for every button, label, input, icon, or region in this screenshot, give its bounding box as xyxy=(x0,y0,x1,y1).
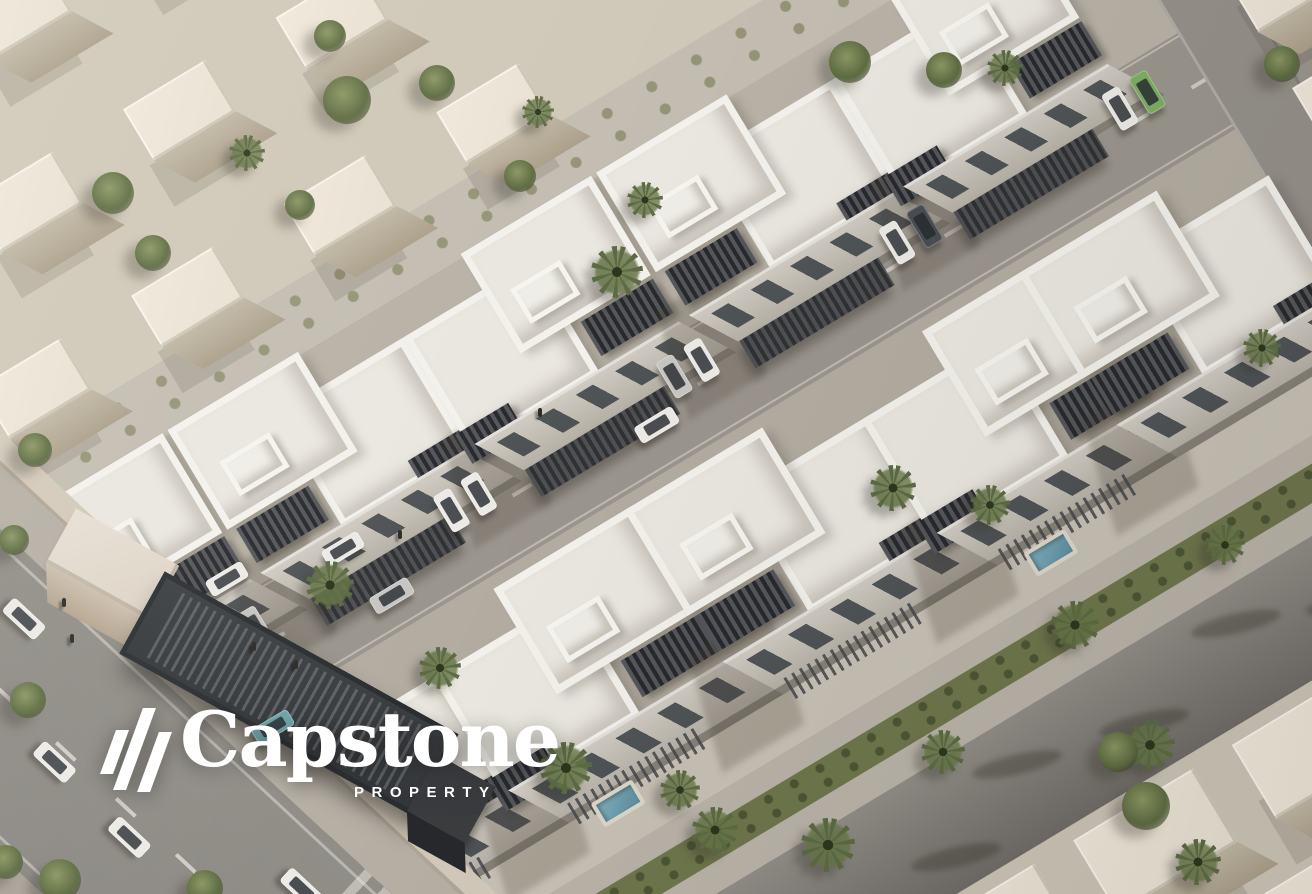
palm-tree xyxy=(921,730,965,774)
palm-tree xyxy=(660,770,700,810)
tree xyxy=(187,870,223,894)
palm-tree xyxy=(970,485,1010,525)
pedestrian xyxy=(70,634,74,643)
palm-tree xyxy=(522,96,554,128)
tree xyxy=(1098,732,1138,772)
tree xyxy=(1264,46,1300,82)
tree xyxy=(829,41,871,83)
pedestrian xyxy=(538,408,542,417)
palm-tree xyxy=(870,465,916,511)
pedestrian xyxy=(398,530,402,539)
tree xyxy=(285,190,315,220)
palm-tree xyxy=(1205,525,1245,565)
tree xyxy=(39,859,81,894)
tree xyxy=(504,160,536,192)
palm-tree xyxy=(692,807,738,853)
tree xyxy=(0,845,23,879)
palm-tree xyxy=(591,246,643,298)
brand-tagline: PROPERTY xyxy=(354,784,497,801)
palm-tree xyxy=(801,818,855,872)
tree xyxy=(92,172,134,214)
pedestrian xyxy=(62,598,66,607)
palm-tree xyxy=(229,135,265,171)
tree xyxy=(135,235,171,271)
pedestrian xyxy=(294,660,298,669)
palm-tree xyxy=(419,647,461,689)
aerial-compound-render: Capstone PROPERTY xyxy=(0,0,1312,894)
palm-tree xyxy=(627,182,663,218)
capstone-logo-icon xyxy=(108,706,170,794)
palm-tree xyxy=(1243,329,1281,367)
tree xyxy=(0,525,29,555)
brand-name: Capstone xyxy=(180,690,510,790)
tree xyxy=(323,76,371,124)
brand-logo: Capstone PROPERTY xyxy=(96,688,536,828)
tree xyxy=(419,65,455,101)
tree xyxy=(314,20,346,52)
tree xyxy=(926,52,962,88)
tree xyxy=(1122,782,1170,830)
palm-tree xyxy=(306,561,354,609)
palm-tree xyxy=(1175,839,1221,885)
palm-tree xyxy=(987,50,1023,86)
palm-tree xyxy=(1051,601,1099,649)
car xyxy=(204,560,249,597)
pedestrian xyxy=(252,642,256,651)
tree xyxy=(10,682,46,718)
tree xyxy=(18,433,52,467)
